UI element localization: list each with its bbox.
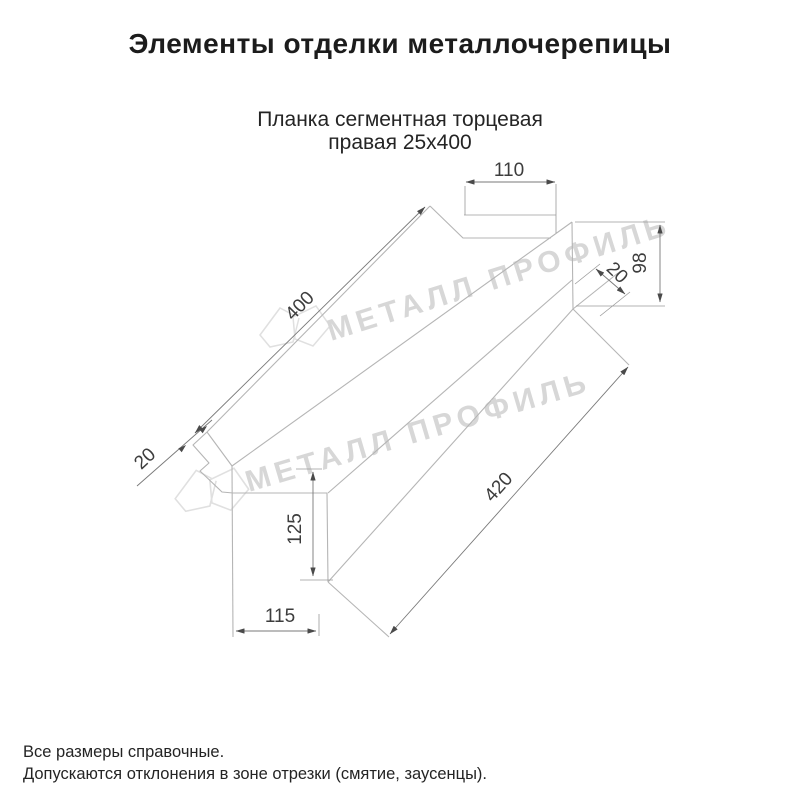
technical-drawing-svg: МЕТАЛЛ ПРОФИЛЬ МЕТАЛЛ ПРОФИЛЬ <box>0 0 800 800</box>
watermark-text-bottom: МЕТАЛЛ ПРОФИЛЬ <box>242 365 595 498</box>
dim-label-420: 420 <box>481 469 518 507</box>
dim-20-left-arrows <box>178 426 207 452</box>
footer-notes: Все размеры справочные. Допускаются откл… <box>23 742 487 785</box>
footer-note-1: Все размеры справочные. <box>23 742 487 764</box>
dim-label-110: 110 <box>494 160 524 181</box>
dim-label-125: 125 <box>285 513 306 545</box>
bottom-left-hem-edge <box>328 582 389 637</box>
dim-label-20-right: 20 <box>602 258 632 288</box>
watermark-bottom: МЕТАЛЛ ПРОФИЛЬ <box>175 365 594 511</box>
left-end-profile <box>233 493 328 582</box>
right-end-edge <box>572 222 573 309</box>
dim-label-115: 115 <box>265 606 295 627</box>
footer-note-2: Допускаются отклонения в зоне отрезки (с… <box>23 764 487 786</box>
bottom-right-hem-edge <box>573 309 629 365</box>
dim-label-98: 98 <box>630 252 651 273</box>
left-end-top-edge <box>207 432 232 466</box>
far-end-left-edge <box>430 206 551 238</box>
